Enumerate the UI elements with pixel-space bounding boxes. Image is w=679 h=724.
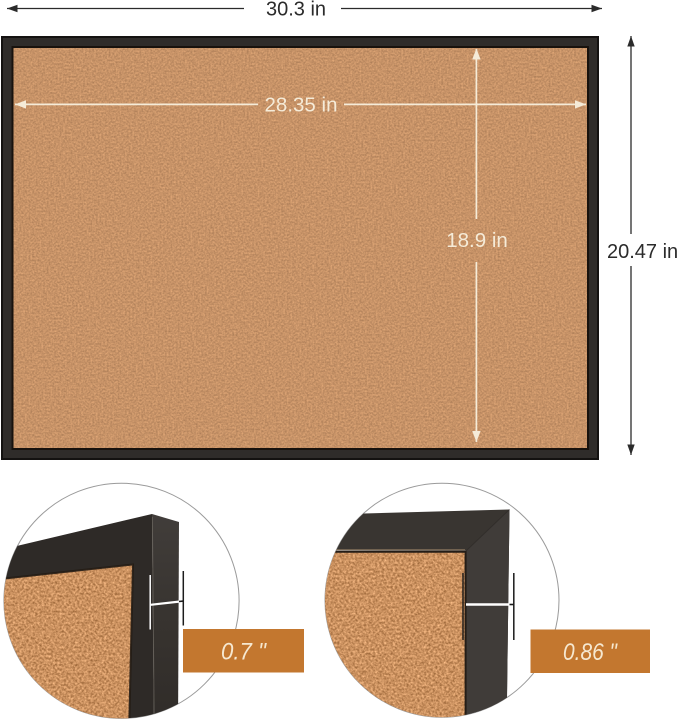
svg-text:0.7 ": 0.7 " — [221, 639, 267, 666]
svg-text:30.3 in: 30.3 in — [266, 0, 326, 21]
svg-text:18.9 in: 18.9 in — [446, 229, 508, 252]
svg-text:20.47 in: 20.47 in — [607, 241, 678, 263]
svg-text:0.86 ": 0.86 " — [563, 639, 618, 666]
svg-text:28.35 in: 28.35 in — [265, 94, 338, 117]
